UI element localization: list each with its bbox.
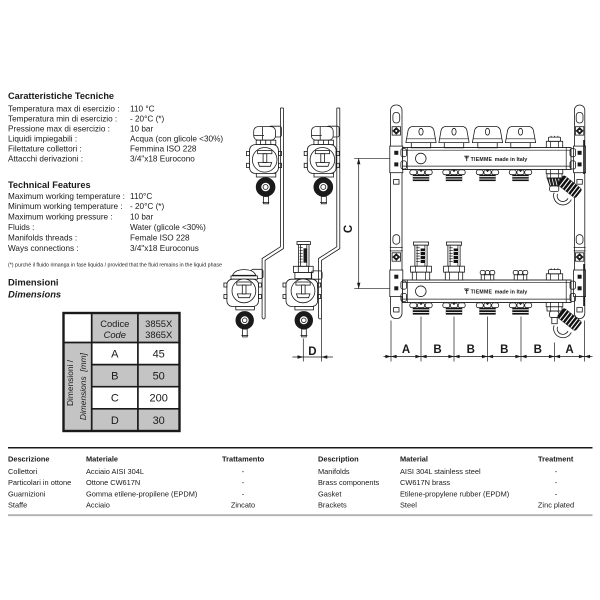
- svg-text:Material: Material: [400, 454, 428, 463]
- svg-text:C: C: [111, 393, 119, 405]
- svg-text:A: A: [565, 344, 573, 356]
- svg-text:10 bar: 10 bar: [130, 213, 153, 222]
- svg-text:Guarnizioni: Guarnizioni: [8, 489, 46, 498]
- svg-text:Filettature collettori :: Filettature collettori :: [8, 145, 82, 154]
- svg-text:Manifolds threads :: Manifolds threads :: [8, 233, 77, 242]
- svg-text:B: B: [111, 371, 118, 383]
- svg-text:Dimensioni: Dimensioni: [8, 277, 59, 288]
- svg-text:110 °C: 110 °C: [130, 105, 155, 114]
- svg-text:Staffe: Staffe: [8, 501, 27, 510]
- svg-text:Temperatura min di esercizio :: Temperatura min di esercizio :: [8, 115, 117, 124]
- svg-text:Treatment: Treatment: [538, 454, 574, 463]
- svg-text:200: 200: [150, 393, 168, 405]
- svg-text:Zinc plated: Zinc plated: [538, 501, 574, 510]
- svg-text:Acciaio AISI 304L: Acciaio AISI 304L: [86, 467, 144, 476]
- svg-text:Descrizione: Descrizione: [8, 454, 50, 463]
- svg-text:Acqua (con glicole <30%): Acqua (con glicole <30%): [130, 135, 223, 144]
- svg-text:A: A: [111, 348, 119, 360]
- svg-text:3/4"x18 Eurocono: 3/4"x18 Eurocono: [130, 155, 195, 164]
- svg-text:Description: Description: [318, 454, 359, 463]
- svg-text:50: 50: [153, 371, 165, 383]
- svg-text:3865X: 3865X: [145, 329, 173, 340]
- svg-text:Acciaio: Acciaio: [86, 501, 110, 510]
- svg-text:B: B: [433, 344, 441, 356]
- svg-text:- 20°C (*): - 20°C (*): [130, 115, 164, 124]
- svg-text:110°C: 110°C: [130, 192, 152, 201]
- svg-text:Code: Code: [104, 329, 126, 340]
- svg-text:Gasket: Gasket: [318, 489, 341, 498]
- svg-text:CW617N brass: CW617N brass: [400, 478, 450, 487]
- svg-text:A: A: [402, 344, 410, 356]
- svg-text:Female ISO 228: Female ISO 228: [130, 233, 190, 242]
- svg-text:10 bar: 10 bar: [130, 125, 153, 134]
- svg-text:Femmina ISO 228: Femmina ISO 228: [130, 145, 197, 154]
- svg-text:Etilene-propylene rubber (EPDM: Etilene-propylene rubber (EPDM): [400, 489, 509, 498]
- svg-text:(*) purché il fluido rimanga i: (*) purché il fluido rimanga in fase liq…: [8, 262, 222, 268]
- svg-text:made in Italy: made in Italy: [495, 157, 528, 163]
- svg-text:made in Italy: made in Italy: [495, 290, 528, 296]
- svg-text:45: 45: [153, 348, 165, 360]
- svg-text:Manifolds: Manifolds: [318, 467, 350, 476]
- svg-text:B: B: [500, 344, 508, 356]
- svg-text:3855X: 3855X: [145, 318, 173, 329]
- svg-text:Particolari in ottone: Particolari in ottone: [8, 478, 71, 487]
- svg-text:Maximum working temperature :: Maximum working temperature :: [8, 192, 125, 201]
- svg-text:30: 30: [153, 415, 165, 427]
- svg-text:Steel: Steel: [400, 501, 417, 510]
- svg-text:AISI 304L stainless steel: AISI 304L stainless steel: [400, 467, 481, 476]
- svg-text:Dimensioni /: Dimensioni /: [65, 359, 75, 406]
- svg-text:Pressione max di esercizio :: Pressione max di esercizio :: [8, 125, 110, 134]
- svg-text:Minimum working temperature :: Minimum working temperature :: [8, 202, 123, 211]
- svg-text:Temperatura max di esercizio :: Temperatura max di esercizio :: [8, 105, 119, 114]
- svg-text:Zincato: Zincato: [231, 501, 255, 510]
- svg-text:Maximum working pressure :: Maximum working pressure :: [8, 213, 113, 222]
- svg-text:TIEMME: TIEMME: [471, 157, 493, 163]
- svg-text:Ottone CW617N: Ottone CW617N: [86, 478, 140, 487]
- svg-text:Materiale: Materiale: [86, 454, 118, 463]
- svg-text:Brass components: Brass components: [318, 478, 380, 487]
- svg-text:Fluids :: Fluids :: [8, 223, 34, 232]
- svg-text:C: C: [343, 225, 355, 233]
- svg-text:B: B: [534, 344, 542, 356]
- svg-text:Technical Features: Technical Features: [8, 180, 91, 190]
- svg-text:Liquidi impiegabili :: Liquidi impiegabili :: [8, 135, 77, 144]
- svg-text:Codice: Codice: [100, 318, 129, 329]
- svg-text:Dimensions [mm]: Dimensions [mm]: [78, 352, 88, 420]
- svg-text:Attacchi derivazioni :: Attacchi derivazioni :: [8, 155, 83, 164]
- svg-text:D: D: [111, 415, 119, 427]
- svg-text:D: D: [308, 346, 316, 358]
- svg-text:TIEMME: TIEMME: [471, 290, 493, 296]
- svg-text:Ways connections :: Ways connections :: [8, 244, 79, 253]
- svg-text:Water (glicole <30%): Water (glicole <30%): [130, 223, 206, 232]
- svg-text:Gomma etilene-propilene (EPDM): Gomma etilene-propilene (EPDM): [86, 489, 197, 498]
- svg-text:Collettori: Collettori: [8, 467, 38, 476]
- svg-text:3/4"x18 Euroconus: 3/4"x18 Euroconus: [130, 244, 199, 253]
- svg-text:Dimensions: Dimensions: [8, 288, 61, 299]
- svg-text:Caratteristiche Tecniche: Caratteristiche Tecniche: [8, 91, 114, 101]
- svg-text:Brackets: Brackets: [318, 501, 347, 510]
- svg-text:Trattamento: Trattamento: [222, 454, 265, 463]
- svg-text:- 20°C (*): - 20°C (*): [130, 202, 164, 211]
- svg-text:B: B: [467, 344, 475, 356]
